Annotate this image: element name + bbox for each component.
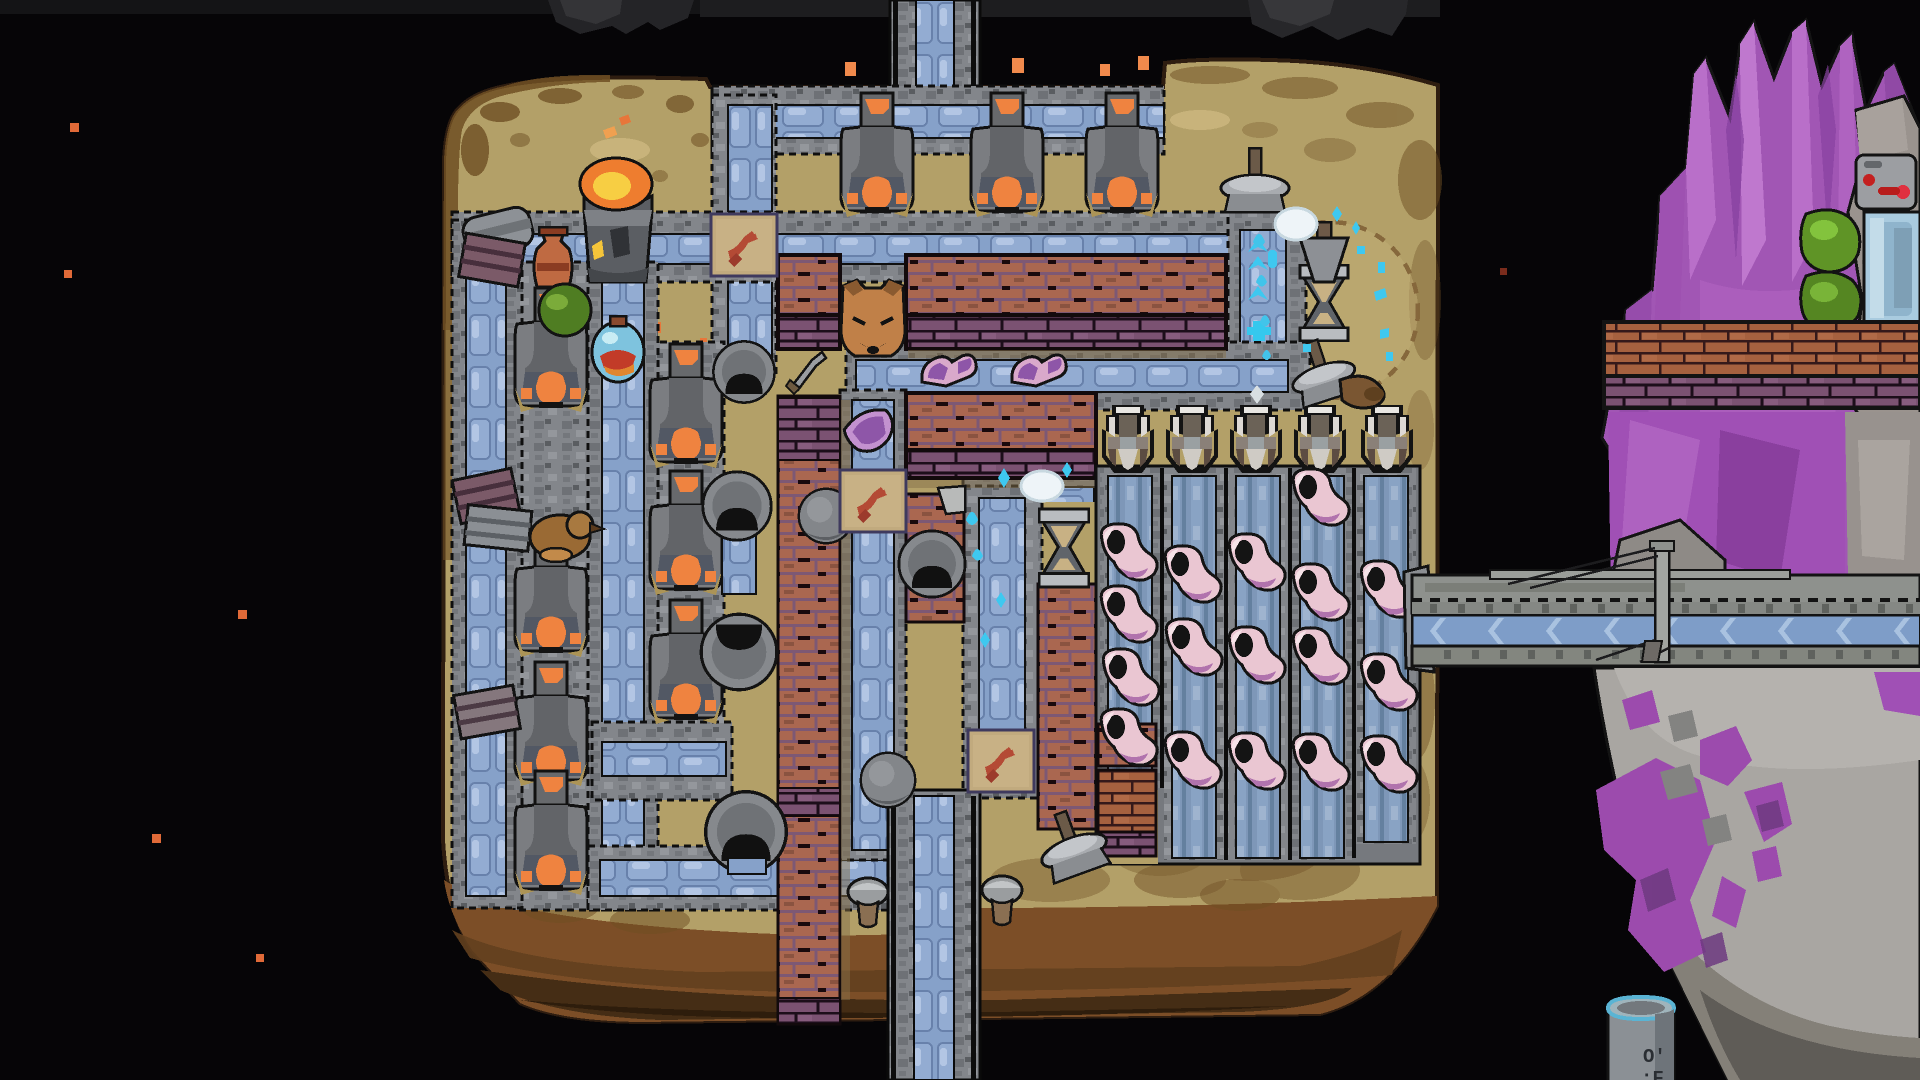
svg-text:O': O' <box>1643 1046 1666 1068</box>
svg-text::F: :F <box>1641 1068 1664 1080</box>
